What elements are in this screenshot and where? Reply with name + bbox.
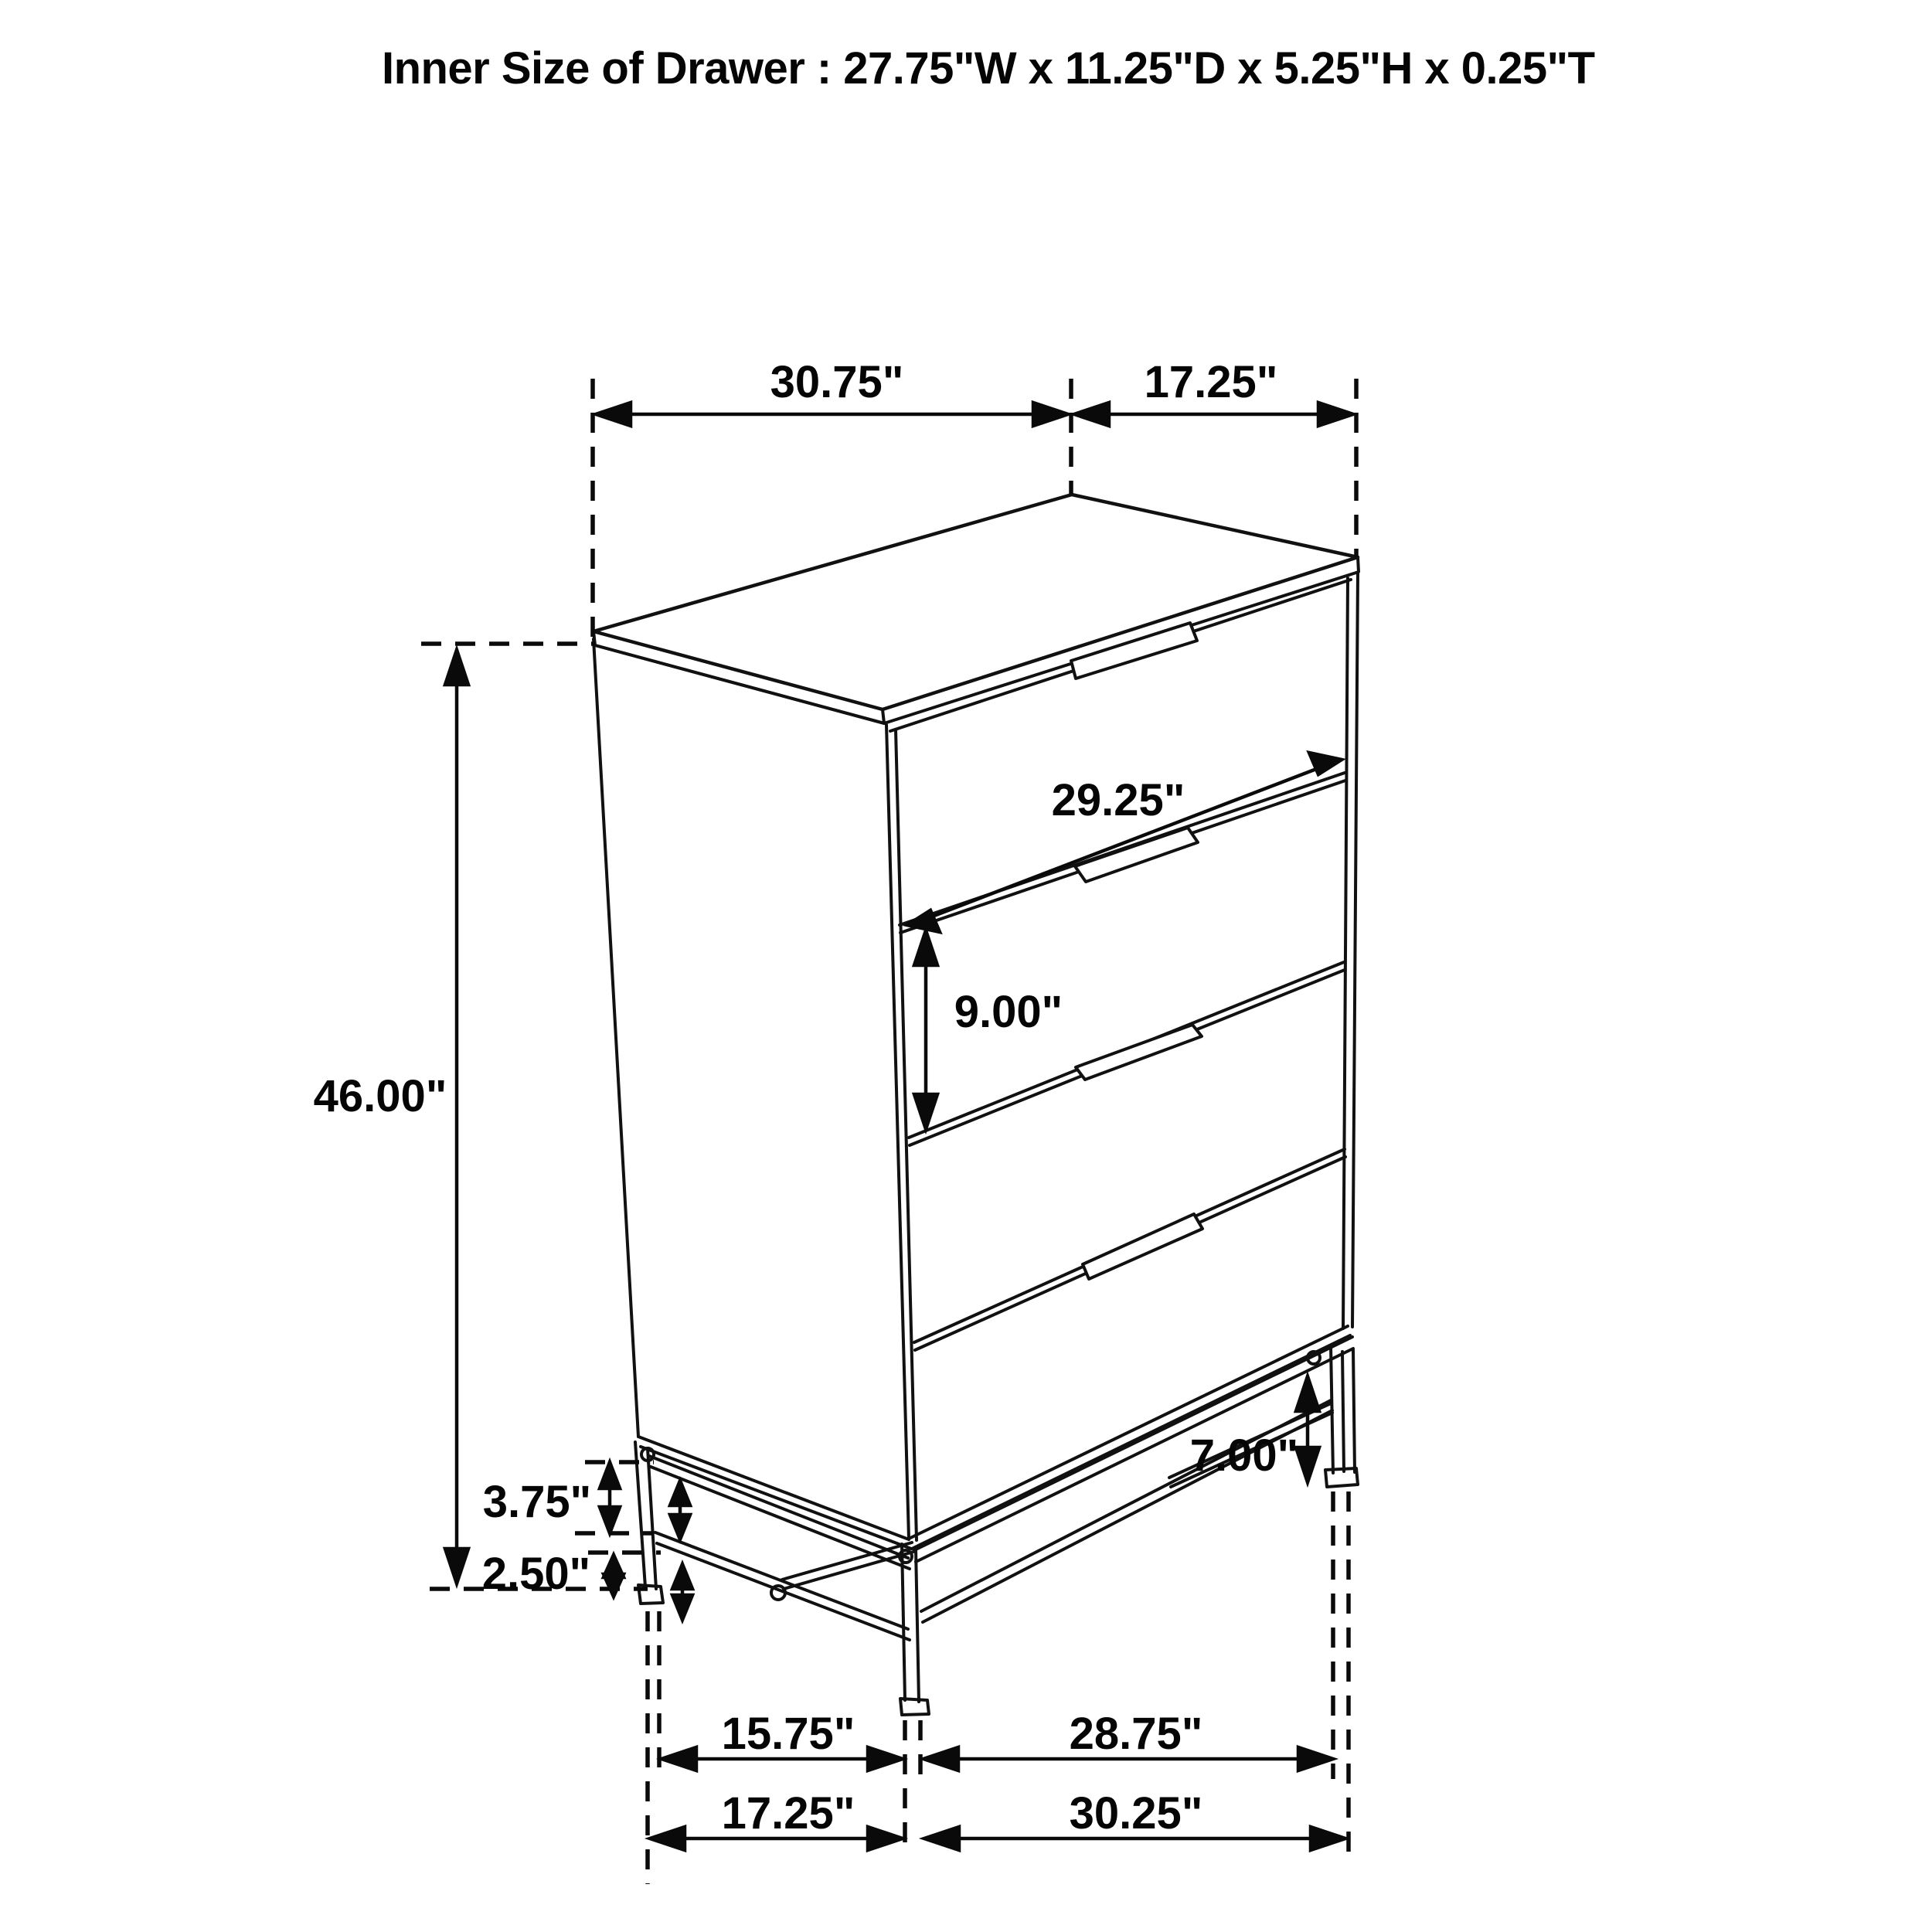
svg-text:30.25": 30.25"	[1070, 1788, 1203, 1838]
svg-text:9.00": 9.00"	[954, 987, 1063, 1037]
svg-text:46.00": 46.00"	[314, 1071, 447, 1121]
svg-text:15.75": 15.75"	[722, 1709, 855, 1759]
svg-text:17.25": 17.25"	[722, 1788, 855, 1838]
svg-text:28.75": 28.75"	[1070, 1709, 1203, 1759]
svg-text:3.75": 3.75"	[483, 1477, 591, 1527]
svg-text:30.75": 30.75"	[770, 357, 904, 407]
svg-text:29.25": 29.25"	[1052, 775, 1185, 825]
svg-text:Inner Size of Drawer : 27.75"W: Inner Size of Drawer : 27.75"W x 11.25"D…	[382, 43, 1595, 94]
svg-text:7.00": 7.00"	[1190, 1430, 1298, 1481]
svg-text:17.25": 17.25"	[1145, 357, 1278, 407]
svg-text:2.50": 2.50"	[482, 1549, 590, 1599]
